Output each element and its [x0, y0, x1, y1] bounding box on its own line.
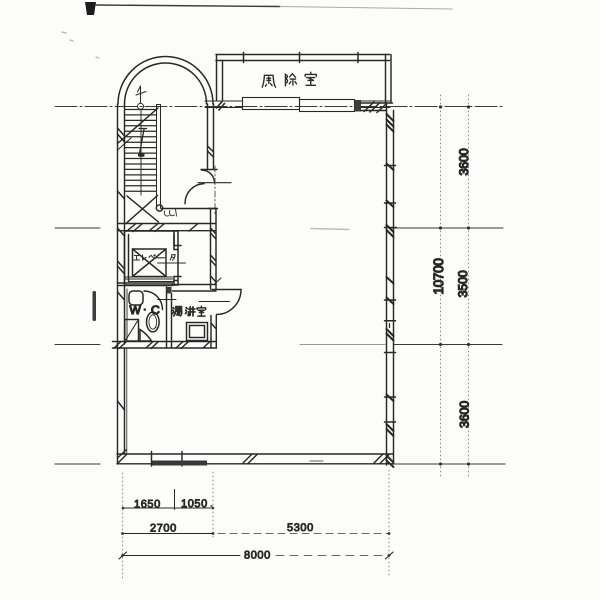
- svg-text:10700: 10700: [431, 258, 446, 294]
- svg-text:2700: 2700: [150, 523, 177, 535]
- svg-text:3600: 3600: [457, 148, 471, 175]
- svg-text:1650: 1650: [134, 499, 161, 511]
- svg-text:3600: 3600: [457, 401, 471, 428]
- svg-text:3500: 3500: [456, 270, 470, 297]
- svg-text:5300: 5300: [287, 522, 314, 534]
- svg-text:8000: 8000: [244, 550, 271, 562]
- svg-text:1050: 1050: [181, 498, 208, 510]
- svg-text:W: W: [130, 303, 142, 317]
